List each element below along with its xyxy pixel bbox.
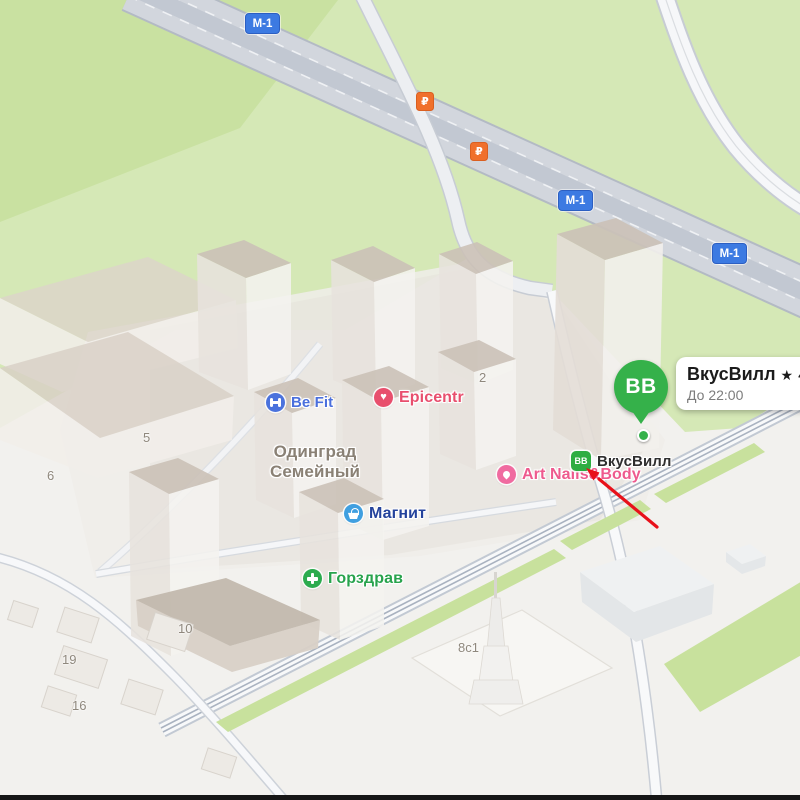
lotus-icon xyxy=(497,465,516,484)
building-number: 5 xyxy=(143,430,150,445)
building-number: 8с1 xyxy=(458,640,479,655)
poi-label: Epicentr xyxy=(399,389,464,407)
building-number: 19 xyxy=(62,652,76,667)
vkusvill-info-card[interactable]: ВкусВилл ★ 4,6 До 22:00 xyxy=(676,357,800,410)
heart-icon xyxy=(374,388,393,407)
bb-icon: ВВ xyxy=(571,451,591,471)
pin-tail xyxy=(632,411,650,424)
building-number: 10 xyxy=(178,621,192,636)
pin-balloon: BB xyxy=(614,360,668,414)
building-number: 6 xyxy=(47,468,54,483)
pin-anchor-dot xyxy=(637,429,650,442)
map-viewport[interactable]: Be Fit Epicentr Одинград Семейный Магнит… xyxy=(0,0,800,800)
toll-road-icon: ₽ xyxy=(416,92,434,111)
poi-befit[interactable]: Be Fit xyxy=(266,393,333,412)
poi-label: Одинград Семейный xyxy=(270,442,360,482)
pin-label: BB xyxy=(625,375,656,399)
poi-epicentr[interactable]: Epicentr xyxy=(374,388,464,407)
building-number: 16 xyxy=(72,698,86,713)
poi-label: ВкусВилл xyxy=(597,453,672,470)
toll-road-icon: ₽ xyxy=(470,142,488,161)
poi-magnit[interactable]: Магнит xyxy=(344,504,426,523)
route-m1-badge: М-1 xyxy=(712,243,747,264)
poi-gorzdrav[interactable]: Горздрав xyxy=(303,569,403,588)
building-number: 2 xyxy=(479,370,486,385)
dumbbell-icon xyxy=(266,393,285,412)
screen-edge xyxy=(0,795,800,800)
vkusvill-map-pin[interactable]: BB xyxy=(614,360,668,424)
card-hours: До 22:00 xyxy=(687,387,800,403)
card-title: ВкусВилл xyxy=(687,364,776,385)
poi-vkusvill[interactable]: ВВ ВкусВилл xyxy=(571,451,672,471)
poi-odingrad-semeyny[interactable]: Одинград Семейный xyxy=(270,442,360,482)
route-m1-badge: М-1 xyxy=(558,190,593,211)
rating-star-icon: ★ xyxy=(781,367,794,384)
poi-label: Be Fit xyxy=(291,394,333,411)
basket-icon xyxy=(344,504,363,523)
cross-icon xyxy=(303,569,322,588)
poi-label: Магнит xyxy=(369,505,426,523)
route-m1-badge: М-1 xyxy=(245,13,280,34)
poi-label: Горздрав xyxy=(328,570,403,588)
